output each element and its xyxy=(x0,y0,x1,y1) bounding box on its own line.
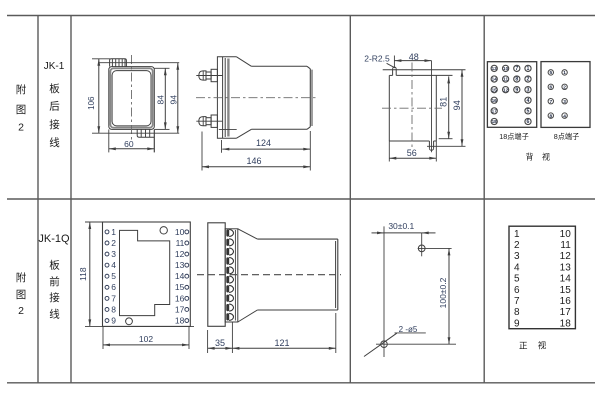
svg-text:2: 2 xyxy=(111,238,116,248)
svg-text:3: 3 xyxy=(527,87,530,93)
svg-text:102: 102 xyxy=(139,334,153,344)
svg-text:48: 48 xyxy=(409,52,419,62)
svg-text:正: 正 xyxy=(519,340,528,350)
svg-text:板: 板 xyxy=(49,82,60,95)
svg-text:146: 146 xyxy=(246,156,261,166)
svg-text:11: 11 xyxy=(176,238,185,248)
svg-text:3: 3 xyxy=(111,249,116,259)
svg-text:2: 2 xyxy=(563,85,566,91)
svg-text:8: 8 xyxy=(514,307,520,318)
svg-text:5: 5 xyxy=(514,274,520,285)
svg-text:7: 7 xyxy=(515,66,518,72)
svg-text:17: 17 xyxy=(492,109,498,114)
svg-text:106: 106 xyxy=(87,96,96,110)
svg-text:81: 81 xyxy=(439,97,449,107)
svg-text:8: 8 xyxy=(515,77,518,83)
svg-text:7: 7 xyxy=(111,293,116,303)
svg-text:60: 60 xyxy=(124,139,134,149)
svg-text:附: 附 xyxy=(16,83,27,96)
svg-text:18: 18 xyxy=(560,318,572,329)
svg-text:JK-1: JK-1 xyxy=(44,61,65,72)
svg-text:板: 板 xyxy=(49,259,60,272)
svg-text:9: 9 xyxy=(515,87,518,93)
svg-text:2-R2.5: 2-R2.5 xyxy=(364,53,390,63)
svg-text:视: 视 xyxy=(542,152,550,162)
svg-text:7: 7 xyxy=(549,99,552,105)
svg-text:9: 9 xyxy=(514,318,520,329)
svg-text:2: 2 xyxy=(527,77,530,83)
svg-text:4: 4 xyxy=(563,113,566,119)
svg-text:12: 12 xyxy=(560,251,572,262)
svg-text:12: 12 xyxy=(503,87,509,92)
svg-text:图: 图 xyxy=(16,104,27,116)
svg-text:4: 4 xyxy=(514,262,520,273)
svg-text:121: 121 xyxy=(274,338,289,348)
svg-text:16: 16 xyxy=(492,98,498,103)
svg-text:5: 5 xyxy=(111,271,116,281)
svg-text:84: 84 xyxy=(155,95,165,105)
svg-text:背: 背 xyxy=(526,152,534,162)
svg-text:11: 11 xyxy=(560,240,571,251)
svg-text:14: 14 xyxy=(492,77,498,82)
svg-text:35: 35 xyxy=(215,338,225,348)
svg-text:6: 6 xyxy=(514,285,520,296)
svg-text:1: 1 xyxy=(514,229,520,240)
svg-text:4: 4 xyxy=(111,260,116,270)
svg-text:1: 1 xyxy=(527,66,530,72)
svg-text:14: 14 xyxy=(560,274,572,285)
svg-text:13: 13 xyxy=(175,260,185,270)
svg-text:15: 15 xyxy=(175,282,185,292)
svg-text:2: 2 xyxy=(18,122,24,134)
svg-text:16: 16 xyxy=(175,293,185,303)
svg-text:30±0.1: 30±0.1 xyxy=(388,221,414,231)
svg-text:13: 13 xyxy=(492,66,498,71)
svg-text:100±0.2: 100±0.2 xyxy=(438,277,448,308)
svg-text:6: 6 xyxy=(549,85,552,91)
svg-text:94: 94 xyxy=(452,100,462,110)
svg-text:56: 56 xyxy=(407,148,417,158)
svg-text:10: 10 xyxy=(503,66,509,71)
svg-text:JK-1Q: JK-1Q xyxy=(38,233,70,245)
svg-text:后: 后 xyxy=(49,101,60,113)
svg-text:15: 15 xyxy=(492,87,498,92)
svg-text:14: 14 xyxy=(175,271,185,281)
svg-text:8: 8 xyxy=(549,113,552,119)
svg-text:8点端子: 8点端子 xyxy=(554,132,580,141)
svg-text:16: 16 xyxy=(560,296,572,307)
svg-text:2: 2 xyxy=(514,240,520,251)
svg-text:17: 17 xyxy=(560,307,572,318)
svg-text:5: 5 xyxy=(549,70,552,76)
svg-text:4: 4 xyxy=(527,98,530,104)
svg-text:图: 图 xyxy=(16,289,27,301)
svg-text:124: 124 xyxy=(256,138,271,148)
svg-text:6: 6 xyxy=(527,119,530,125)
svg-text:1: 1 xyxy=(563,70,566,76)
svg-text:前: 前 xyxy=(49,275,60,288)
svg-text:15: 15 xyxy=(560,285,572,296)
svg-text:接: 接 xyxy=(49,291,60,304)
svg-text:10: 10 xyxy=(560,229,572,240)
svg-text:118: 118 xyxy=(78,267,88,281)
svg-text:94: 94 xyxy=(168,95,178,105)
svg-text:6: 6 xyxy=(111,282,116,292)
svg-text:接: 接 xyxy=(49,118,60,131)
svg-text:3: 3 xyxy=(563,99,566,105)
svg-text:18点端子: 18点端子 xyxy=(499,132,529,141)
svg-text:8: 8 xyxy=(111,304,116,314)
svg-text:13: 13 xyxy=(560,262,572,273)
svg-text:7: 7 xyxy=(514,296,520,307)
svg-text:3: 3 xyxy=(514,251,520,262)
svg-text:17: 17 xyxy=(175,304,185,314)
svg-text:线: 线 xyxy=(49,136,60,149)
svg-text:附: 附 xyxy=(16,271,27,284)
svg-text:11: 11 xyxy=(503,77,508,82)
svg-text:18: 18 xyxy=(175,315,185,325)
svg-text:线: 线 xyxy=(49,308,60,321)
svg-text:2: 2 xyxy=(18,305,24,317)
svg-text:1: 1 xyxy=(111,227,116,237)
svg-text:18: 18 xyxy=(492,119,498,124)
svg-text:12: 12 xyxy=(175,249,185,259)
svg-text:10: 10 xyxy=(175,227,185,237)
svg-text:9: 9 xyxy=(111,315,116,325)
svg-text:视: 视 xyxy=(538,340,547,350)
svg-text:5: 5 xyxy=(527,109,530,115)
